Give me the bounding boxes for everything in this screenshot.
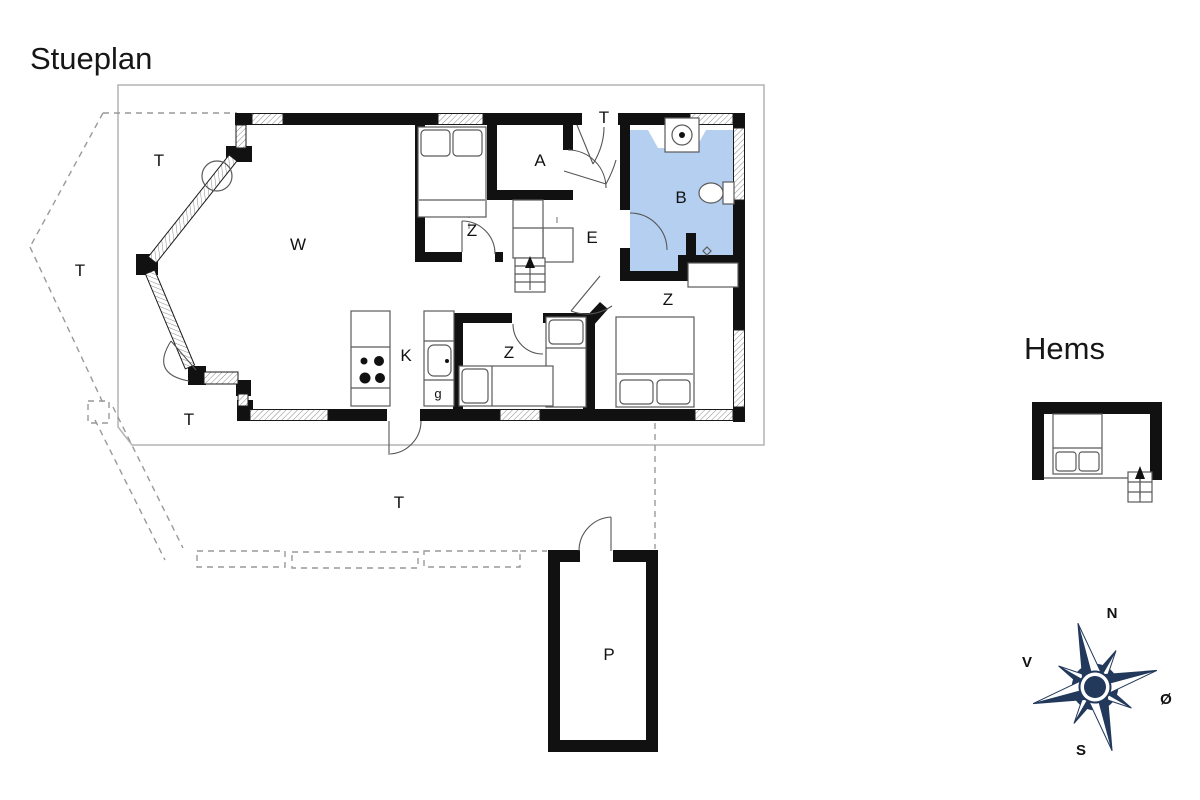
bed-mid-horizontal	[459, 366, 553, 406]
terrace-label-upper: T	[154, 151, 164, 170]
bathroom-sink	[665, 118, 699, 152]
closet-below-bath	[688, 263, 738, 287]
south-terrace-door	[388, 421, 421, 454]
stairs-main	[515, 256, 545, 292]
closet-below-annex	[513, 200, 543, 258]
compass-rose: N V Ø S	[1016, 605, 1174, 767]
kitchen-stove-counter	[351, 311, 390, 406]
floorplan-svg: Stueplan Hems	[0, 0, 1200, 800]
room-label-kitchen: K	[400, 346, 412, 365]
inset-title: Hems	[1024, 331, 1105, 366]
entrance-door	[577, 125, 593, 164]
room-label-pantry: g	[434, 386, 441, 401]
floorplan-canvas: Stueplan Hems	[0, 0, 1200, 800]
room-label-bedroom-se: Z	[663, 290, 673, 309]
terrace-label-south: T	[394, 493, 404, 512]
toilet	[699, 182, 734, 204]
stairs-hems	[1128, 466, 1152, 502]
bedroom-mid-door	[513, 324, 543, 354]
room-label-bedroom-nw: Z	[467, 221, 477, 240]
compass-north-label: N	[1107, 605, 1118, 622]
compass-west-label: V	[1022, 654, 1032, 671]
bedroom-se-door	[571, 276, 600, 311]
room-label-living: W	[290, 235, 306, 254]
bed-se	[616, 317, 694, 407]
terrace-label-lower: T	[184, 410, 194, 429]
room-label-bathroom: B	[675, 188, 686, 207]
page-title: Stueplan	[30, 41, 152, 76]
bed-hems	[1053, 414, 1102, 474]
room-label-entry: E	[586, 228, 597, 247]
compass-south-label: S	[1076, 742, 1086, 759]
terrace-label-entrance: T	[599, 108, 609, 127]
terrace-label-left: T	[75, 261, 85, 280]
compass-east-label: Ø	[1160, 691, 1172, 708]
room-label-outbuilding: P	[603, 645, 614, 664]
closet-entry	[543, 228, 573, 262]
room-label-bedroom-mid: Z	[504, 343, 514, 362]
bed-nw	[418, 127, 486, 217]
room-label-annex: A	[534, 151, 546, 170]
